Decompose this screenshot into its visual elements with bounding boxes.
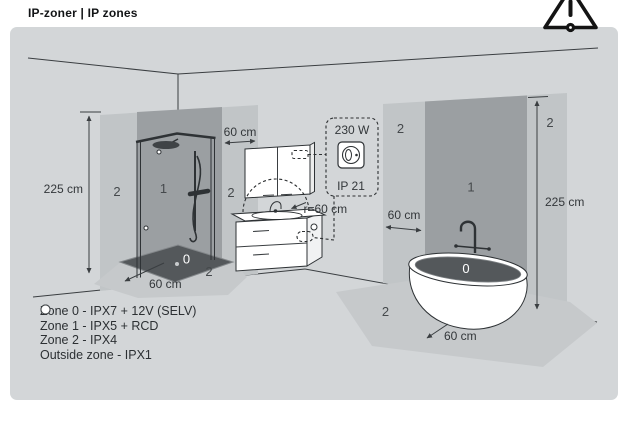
page: IP-zoner | IP zones bbox=[0, 0, 643, 422]
bathtub-faucet-knob-left bbox=[454, 244, 458, 248]
vanity-side-socket bbox=[311, 224, 317, 230]
mirror-cabinet bbox=[245, 143, 315, 199]
zone-label-shower-floor: 2 bbox=[205, 264, 212, 279]
shower-thermostat bbox=[190, 191, 208, 194]
dim-socket-side-label: 60 cm bbox=[388, 208, 421, 222]
mirror-cabinet-side bbox=[310, 143, 315, 195]
legend-label-zone1: Zone 1 - IPX5 + RCD bbox=[40, 319, 158, 333]
zone-label-left-wall-outer: 2 bbox=[113, 184, 120, 199]
vanity-faucet-handle bbox=[274, 209, 278, 213]
zone-label-shower-tray: 0 bbox=[183, 252, 190, 267]
socket-power-label: 230 W bbox=[335, 123, 370, 137]
socket-icon-pin bbox=[355, 154, 358, 157]
legend-item-outside-zone: Outside zone - IPX1 bbox=[40, 348, 196, 363]
zone-label-right-wall-left: 2 bbox=[397, 121, 404, 136]
legend-item-zone1: Zone 1 - IPX5 + RCD bbox=[40, 319, 196, 334]
legend: Zone 0 - IPX7 + 12V (SELV) Zone 1 - IPX5… bbox=[40, 304, 196, 362]
dim-tray-label: 60 cm bbox=[149, 277, 182, 291]
warning-exclamation-dot bbox=[568, 25, 574, 31]
zone-label-right-wall-right: 2 bbox=[546, 115, 553, 130]
shower-drain bbox=[175, 262, 179, 266]
bathtub-faucet-knob-right bbox=[487, 247, 491, 251]
zone-label-left-wall-inner: 2 bbox=[227, 185, 234, 200]
legend-label-zone0: Zone 0 - IPX7 + 12V (SELV) bbox=[40, 304, 196, 318]
legend-item-zone2: Zone 2 - IPX4 bbox=[40, 333, 196, 348]
shower-door-knob-top bbox=[157, 150, 161, 154]
dim-left-height-label: 225 cm bbox=[44, 182, 83, 196]
shower-head bbox=[153, 141, 180, 149]
radius-label: r=60 cm bbox=[304, 202, 348, 216]
zone-label-bathtub-floor: 2 bbox=[382, 304, 389, 319]
legend-item-zone0: Zone 0 - IPX7 + 12V (SELV) bbox=[40, 304, 196, 319]
zone-label-left-wall-shower: 1 bbox=[160, 181, 167, 196]
zone-label-right-wall-tub: 1 bbox=[467, 180, 474, 195]
dim-right-height-label: 225 cm bbox=[545, 195, 584, 209]
shower-door-knob-bottom bbox=[144, 226, 148, 230]
socket-ip-label: IP 21 bbox=[337, 179, 365, 193]
socket-icon bbox=[338, 142, 364, 168]
warning-icon bbox=[545, 0, 596, 31]
legend-bullet-outside-icon bbox=[40, 304, 51, 315]
legend-label-zone2: Zone 2 - IPX4 bbox=[40, 333, 117, 347]
vanity-side bbox=[307, 213, 322, 266]
dim-tub-label: 60 cm bbox=[444, 329, 477, 343]
zone-label-bathtub: 0 bbox=[462, 261, 469, 276]
dim-shower-side-label: 60 cm bbox=[224, 125, 257, 139]
legend-label-outside: Outside zone - IPX1 bbox=[40, 348, 152, 362]
